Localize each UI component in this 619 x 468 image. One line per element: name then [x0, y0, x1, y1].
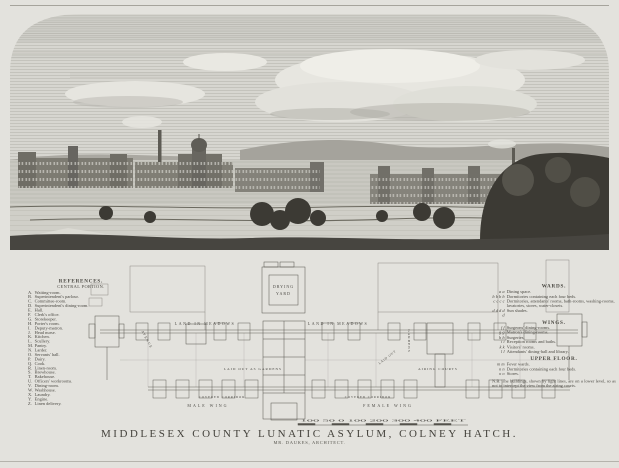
- wings-section: WINGS. f f Surgeons' dining-rooms. g g M…: [492, 320, 616, 354]
- reference-marker: a a: [492, 290, 507, 294]
- reference-label: Stores.: [507, 372, 616, 376]
- reference-item: o o Stores.: [492, 372, 616, 376]
- reference-item: h h Surgeries.: [492, 335, 616, 339]
- plan-note: N.B. The buildings, shown by light lines…: [492, 379, 616, 388]
- reference-label: Dining space.: [507, 290, 616, 294]
- reference-item: l l Attendants' dining-hall and library.: [492, 350, 616, 354]
- reference-item: b b b b Dormitories containing each four…: [492, 295, 616, 299]
- label-laid-out-as-gardens: LAID OUT AS GARDENS: [224, 367, 282, 371]
- reference-label: Surgeons' dining-rooms.: [507, 326, 616, 330]
- reference-item: m m Fever wards.: [492, 362, 616, 366]
- architect-credit: MR. DAUKES, ARCHITECT.: [77, 441, 541, 446]
- wards-section: WARDS. a a Dining space. b b b b Dormito…: [492, 284, 616, 318]
- caption-block: MIDDLESEX COUNTY LUNATIC ASYLUM, COLNEY …: [0, 428, 619, 447]
- reference-label: Visitors' rooms.: [507, 345, 616, 349]
- reference-item: a a Dining space.: [492, 290, 616, 294]
- chimney-smoke: [488, 140, 516, 149]
- reference-marker: n n: [492, 367, 507, 371]
- label-drying: DRYING: [273, 284, 294, 289]
- label-male-wing: MALE WING: [187, 403, 228, 408]
- reference-label: Dormitories containing each four beds.: [507, 295, 616, 299]
- label-female-wing: FEMALE WING: [363, 403, 413, 408]
- chimney-smoke: [122, 116, 162, 128]
- reference-key: Z.: [28, 402, 35, 406]
- wings-header: WINGS.: [492, 320, 616, 325]
- reference-label: Reception rooms and baths.: [507, 340, 616, 344]
- reference-marker: k k: [492, 345, 507, 349]
- references-right-column: WARDS. a a Dining space. b b b b Dormito…: [492, 284, 616, 406]
- reference-label: Dormitories containing each four beds.: [507, 367, 616, 371]
- label-airing-courts: AIRING COURTS: [418, 367, 458, 371]
- panorama-engraving-area: [10, 8, 609, 250]
- reference-item: d d d d d Sun shades.: [492, 309, 616, 318]
- upper-floor-section: UPPER FLOOR. m m Fever wards. n n Dormit…: [492, 357, 616, 377]
- label-covered-corridor-right: COVERED CORRIDOR: [345, 395, 391, 399]
- female-wing-cross-pavilion: [427, 323, 453, 387]
- plan-title: MIDDLESEX COUNTY LUNATIC ASYLUM, COLNEY …: [0, 428, 619, 440]
- reference-marker: i i: [492, 340, 507, 344]
- label-scale-feet: 100 50 0 100 200 300 400 FEET: [301, 419, 466, 423]
- reference-label: Surgeries.: [507, 335, 616, 339]
- asylum-panorama-engraving: [10, 8, 609, 250]
- reference-label: Matron's dining-rooms.: [507, 331, 616, 335]
- reference-marker: o o: [492, 372, 507, 376]
- reference-marker: f f: [492, 326, 507, 330]
- reference-label: Fever wards.: [507, 362, 616, 366]
- reference-marker: h h: [492, 335, 507, 339]
- reference-item: i i Reception rooms and baths.: [492, 340, 616, 344]
- wards-header: WARDS.: [492, 284, 616, 289]
- label-yard: YARD: [276, 291, 291, 296]
- bottom-trim-rule: [0, 461, 619, 462]
- reference-label: Dormitories, attendants' rooms, bath-roo…: [507, 300, 616, 309]
- scale-bar: [298, 424, 468, 426]
- label-land-right: LAND IN MEADOWS: [308, 321, 369, 326]
- upper-floor-header: UPPER FLOOR.: [492, 357, 616, 362]
- reference-item: g g Matron's dining-rooms.: [492, 331, 616, 335]
- sky-streak: [10, 16, 609, 42]
- engraved-print-page: REFERENCES. CENTRAL PORTION. A. Waiting-…: [0, 0, 619, 468]
- reference-item: k k Visitors' rooms.: [492, 345, 616, 349]
- top-trim-rule: [10, 5, 609, 6]
- reference-marker: c c c c: [492, 300, 507, 309]
- label-laid-out-diagonal: LAID OUT: [378, 349, 397, 365]
- reference-item: n n Dormitories containing each four bed…: [492, 367, 616, 371]
- reference-item: f f Surgeons' dining-rooms.: [492, 326, 616, 330]
- reference-label: Attendants' dining-hall and library.: [507, 350, 616, 354]
- label-avenue-diagonal: AVENUE: [140, 330, 153, 349]
- reference-marker: b b b b: [492, 295, 507, 299]
- reference-marker: l l: [492, 350, 507, 354]
- reference-item: c c c c Dormitories, attendants' rooms, …: [492, 300, 616, 309]
- reference-marker: g g: [492, 331, 507, 335]
- reference-marker: m m: [492, 362, 507, 366]
- label-gardens-vertical: GARDENS: [407, 329, 411, 353]
- reference-label: Sun shades.: [507, 309, 616, 318]
- central-cupola: [191, 138, 207, 152]
- label-land-left: LAND IN MEADOWS: [175, 321, 236, 326]
- reference-marker: d d d d d: [492, 309, 507, 318]
- label-covered-corridor-left: COVERED CORRIDOR: [199, 395, 245, 399]
